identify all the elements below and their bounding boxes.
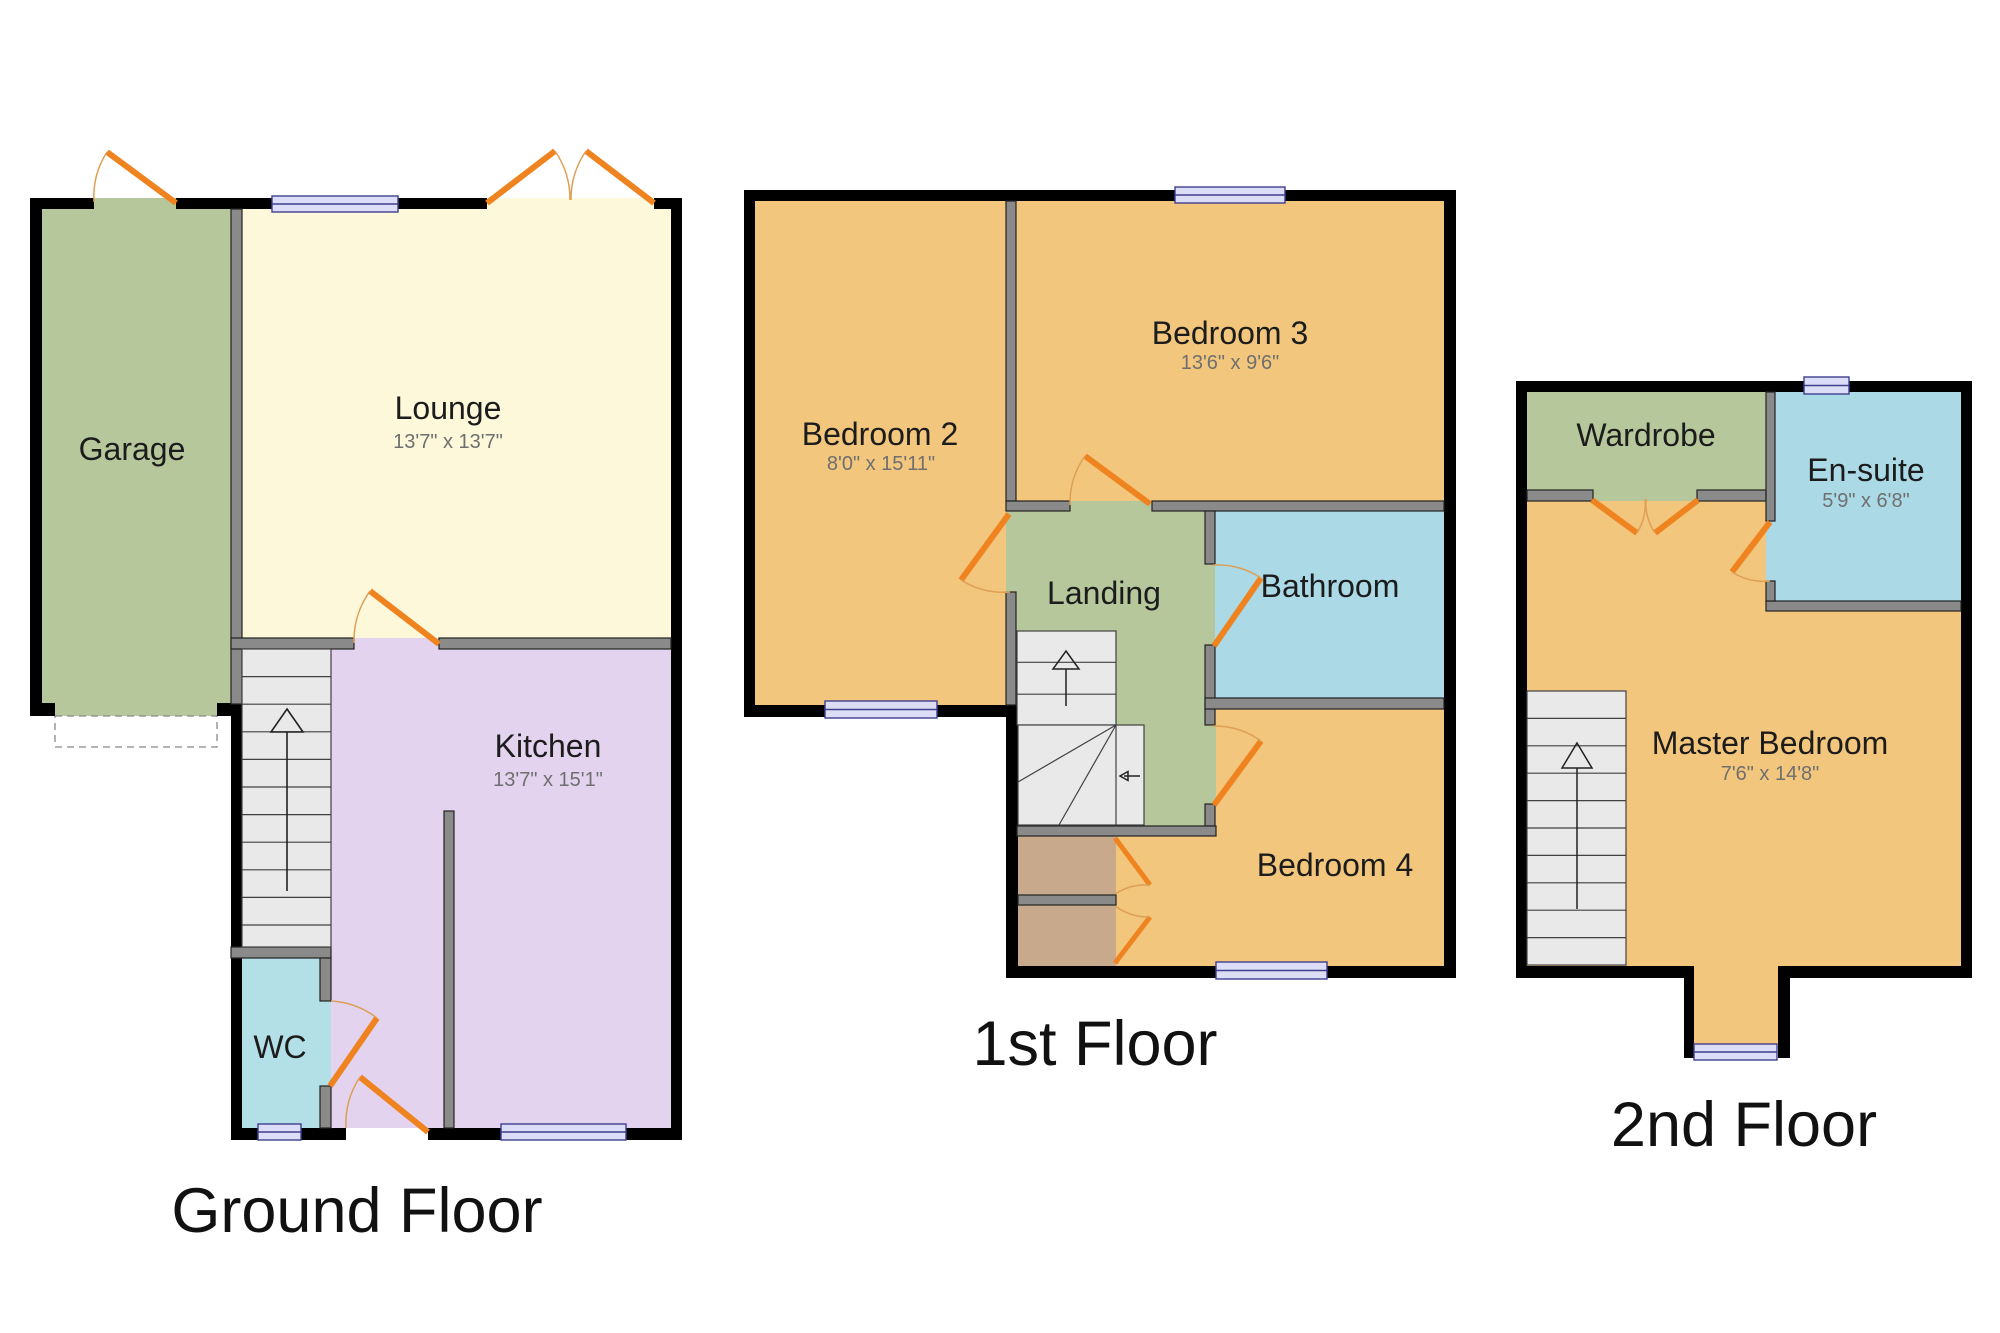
svg-text:En-suite: En-suite bbox=[1807, 452, 1924, 488]
svg-text:5'9" x 6'8": 5'9" x 6'8" bbox=[1822, 490, 1909, 512]
svg-text:7'6" x 14'8": 7'6" x 14'8" bbox=[1721, 763, 1820, 785]
svg-text:Wardrobe: Wardrobe bbox=[1576, 417, 1715, 453]
svg-text:1st Floor: 1st Floor bbox=[972, 1009, 1217, 1079]
svg-text:Kitchen: Kitchen bbox=[495, 728, 602, 764]
svg-text:13'7" x 15'1": 13'7" x 15'1" bbox=[493, 769, 603, 791]
svg-text:Landing: Landing bbox=[1047, 575, 1161, 611]
svg-text:Bedroom 2: Bedroom 2 bbox=[802, 416, 959, 452]
svg-text:13'7" x 13'7": 13'7" x 13'7" bbox=[393, 431, 503, 453]
svg-text:WC: WC bbox=[253, 1029, 306, 1065]
svg-text:8'0" x 15'11": 8'0" x 15'11" bbox=[827, 453, 935, 475]
svg-text:Bedroom 4: Bedroom 4 bbox=[1257, 847, 1414, 883]
svg-text:Bathroom: Bathroom bbox=[1261, 568, 1400, 604]
svg-text:2nd Floor: 2nd Floor bbox=[1611, 1090, 1877, 1160]
svg-text:Garage: Garage bbox=[79, 431, 186, 467]
svg-text:Bedroom 3: Bedroom 3 bbox=[1152, 315, 1309, 351]
svg-text:Lounge: Lounge bbox=[395, 390, 502, 426]
svg-text:Master Bedroom: Master Bedroom bbox=[1652, 725, 1889, 761]
svg-text:Ground Floor: Ground Floor bbox=[171, 1176, 542, 1246]
svg-text:13'6" x 9'6": 13'6" x 9'6" bbox=[1181, 352, 1280, 374]
